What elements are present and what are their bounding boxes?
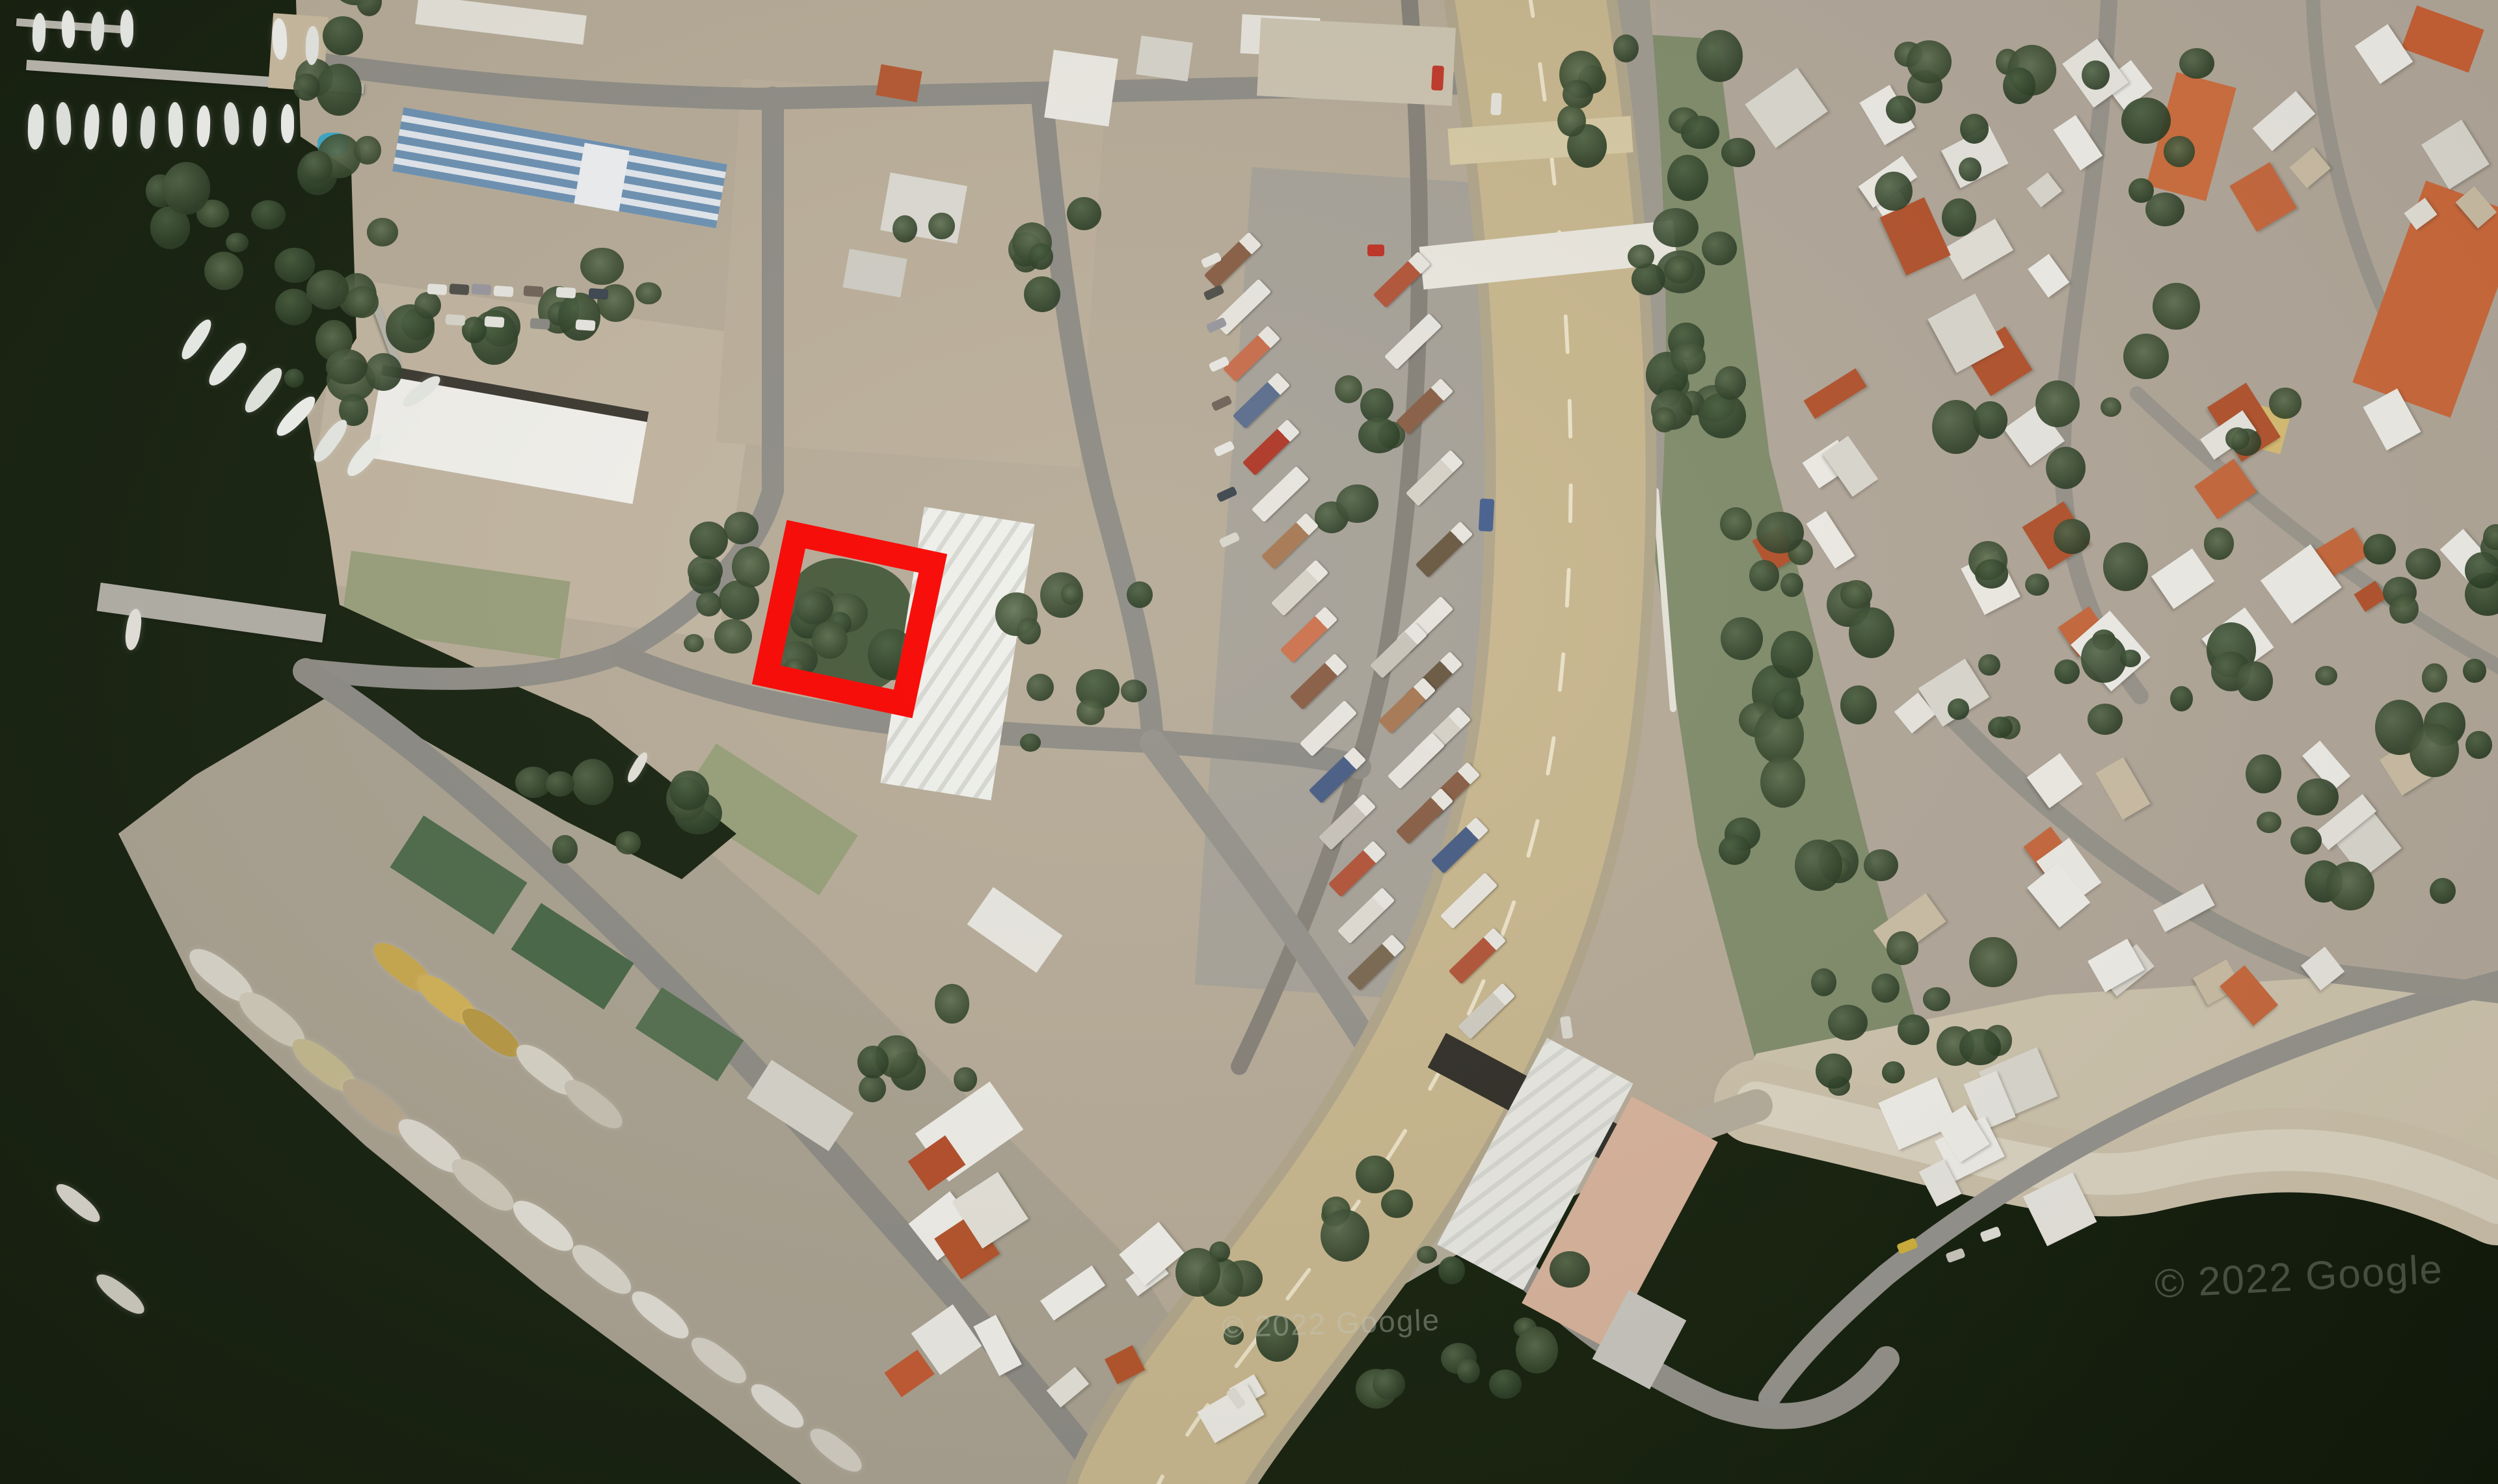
tree [954,1067,977,1092]
car [1431,66,1444,91]
tree [1335,375,1362,403]
map-imagery-layer [0,0,2498,1484]
tree [546,771,574,797]
tree [1681,116,1719,149]
tree [636,282,662,304]
tree [2257,812,2281,833]
tree [1127,581,1153,608]
tree [1849,607,1894,658]
tree [1887,931,1918,965]
tree [1699,393,1746,438]
tree [688,555,723,587]
tree [2088,704,2123,735]
tree [2153,283,2200,330]
tree [2297,778,2339,815]
satellite-map-viewport[interactable]: © 2022 Google © 2022 Google [0,0,2498,1484]
tree [2120,650,2141,667]
car [575,319,595,331]
tree [1702,232,1737,265]
tree [1719,835,1751,865]
boat [281,104,294,143]
tree [306,270,349,310]
tree [1489,1370,1522,1399]
tree [367,218,398,246]
tree [1175,1248,1220,1297]
tree [2290,827,2322,855]
tree [1882,1061,1905,1083]
tree [1780,573,1803,597]
tree [2410,724,2458,777]
tree [1959,1029,2001,1065]
tree [1671,341,1705,374]
tree [1771,631,1813,678]
boat [113,103,127,147]
tree [1907,40,1952,83]
car [1490,93,1502,116]
car [1367,245,1384,256]
tree [2170,686,2193,711]
tree [414,292,441,319]
tree [1795,840,1842,891]
car [445,314,465,326]
tree [1563,80,1593,109]
highlighted-area-marker[interactable] [752,520,947,719]
tree [1628,245,1654,269]
tree [1024,276,1060,311]
tree [2406,548,2441,579]
car [471,284,491,295]
tree [204,252,243,290]
tree [345,286,379,318]
tree [1020,734,1041,752]
tree [572,759,613,804]
boat [120,10,133,47]
tree [1697,30,1743,82]
urban-road-3 [2137,393,2498,673]
car [449,284,469,295]
tree [1864,849,1898,881]
tree [1358,417,1400,453]
tree [1613,34,1639,62]
tree [1721,617,1763,660]
tree [354,136,381,165]
tree [1975,559,2008,588]
tree [580,248,623,285]
tree [1773,688,1804,719]
industrial-east-road [1042,98,1153,741]
tree [1840,580,1872,609]
tree [1373,1369,1405,1399]
tree [1715,366,1746,400]
tree [1077,698,1105,725]
tree [251,200,286,230]
tree [1017,618,1041,644]
tree [669,771,709,810]
tree [326,349,368,385]
tree [2204,527,2233,560]
tree [1027,674,1054,701]
car [588,288,608,300]
tree [2315,666,2337,685]
tree [2121,98,2170,144]
tree [2103,542,2149,591]
tree [2465,552,2498,589]
tree [2101,397,2121,417]
tree [2326,862,2374,910]
car [484,316,504,328]
tree [1932,400,1980,454]
tree [1942,198,1976,237]
tree [1886,96,1916,124]
car [523,285,543,297]
tree [2035,380,2080,427]
tree [2179,48,2214,79]
car [493,285,513,297]
tree [2225,427,2250,450]
tree [1321,1210,1369,1262]
tree [1721,138,1755,167]
tree [1720,507,1752,540]
tree [552,835,578,864]
tree [1756,512,1804,553]
tree [1988,717,2013,738]
tree [1557,105,1586,137]
tree [1438,1256,1465,1284]
tree [1653,208,1698,247]
tree [1959,157,1981,181]
tree [2422,663,2447,693]
hillside-stair-path [1656,491,1673,709]
tree [558,293,600,341]
tree [684,634,704,653]
tree [1828,1005,1868,1040]
tree [2430,878,2456,904]
tree [1381,1189,1413,1218]
tree [1067,197,1101,231]
tree [724,512,759,544]
tree [1840,685,1877,724]
tree [2129,178,2154,202]
tree [1652,407,1676,432]
car [556,287,576,298]
tree [1973,401,2008,438]
tree [1516,1327,1557,1373]
tree [1960,114,1989,144]
tree [2164,136,2196,167]
tree [303,151,332,183]
tree [1417,1246,1437,1264]
tree [323,16,363,55]
tree [928,213,955,239]
tree [857,1046,889,1079]
tree [2246,754,2281,793]
tree [732,546,770,587]
car [530,318,550,330]
gray-building-north [1136,36,1193,82]
tree [1969,937,2017,988]
tree [163,162,211,215]
tree [1028,243,1053,270]
tree [2054,519,2091,553]
tree [1336,484,1378,522]
tree [690,522,728,560]
tree [1948,698,1970,720]
tree [275,248,314,283]
car [427,284,447,295]
toll-plaza [1257,18,1456,106]
tree [365,353,402,391]
tree [2082,60,2110,90]
tree [935,984,970,1024]
tree [1760,756,1805,808]
white-building-north [1044,49,1118,126]
tree [1898,1014,1929,1045]
tree [2465,731,2491,759]
tree [2236,661,2274,701]
tree [2269,388,2302,418]
tree [2046,447,2086,489]
tree [1667,155,1708,201]
tree [1875,172,1913,211]
car [1479,498,1495,531]
tree [1550,1251,1590,1288]
tree [316,64,362,116]
tree [1811,968,1836,996]
tree [1816,1053,1852,1088]
tree [1872,974,1900,1003]
tree [714,619,752,654]
tree [1356,1156,1393,1193]
tree [2363,534,2396,564]
tree [696,592,721,616]
tree [2003,68,2035,104]
tree [2389,594,2419,624]
